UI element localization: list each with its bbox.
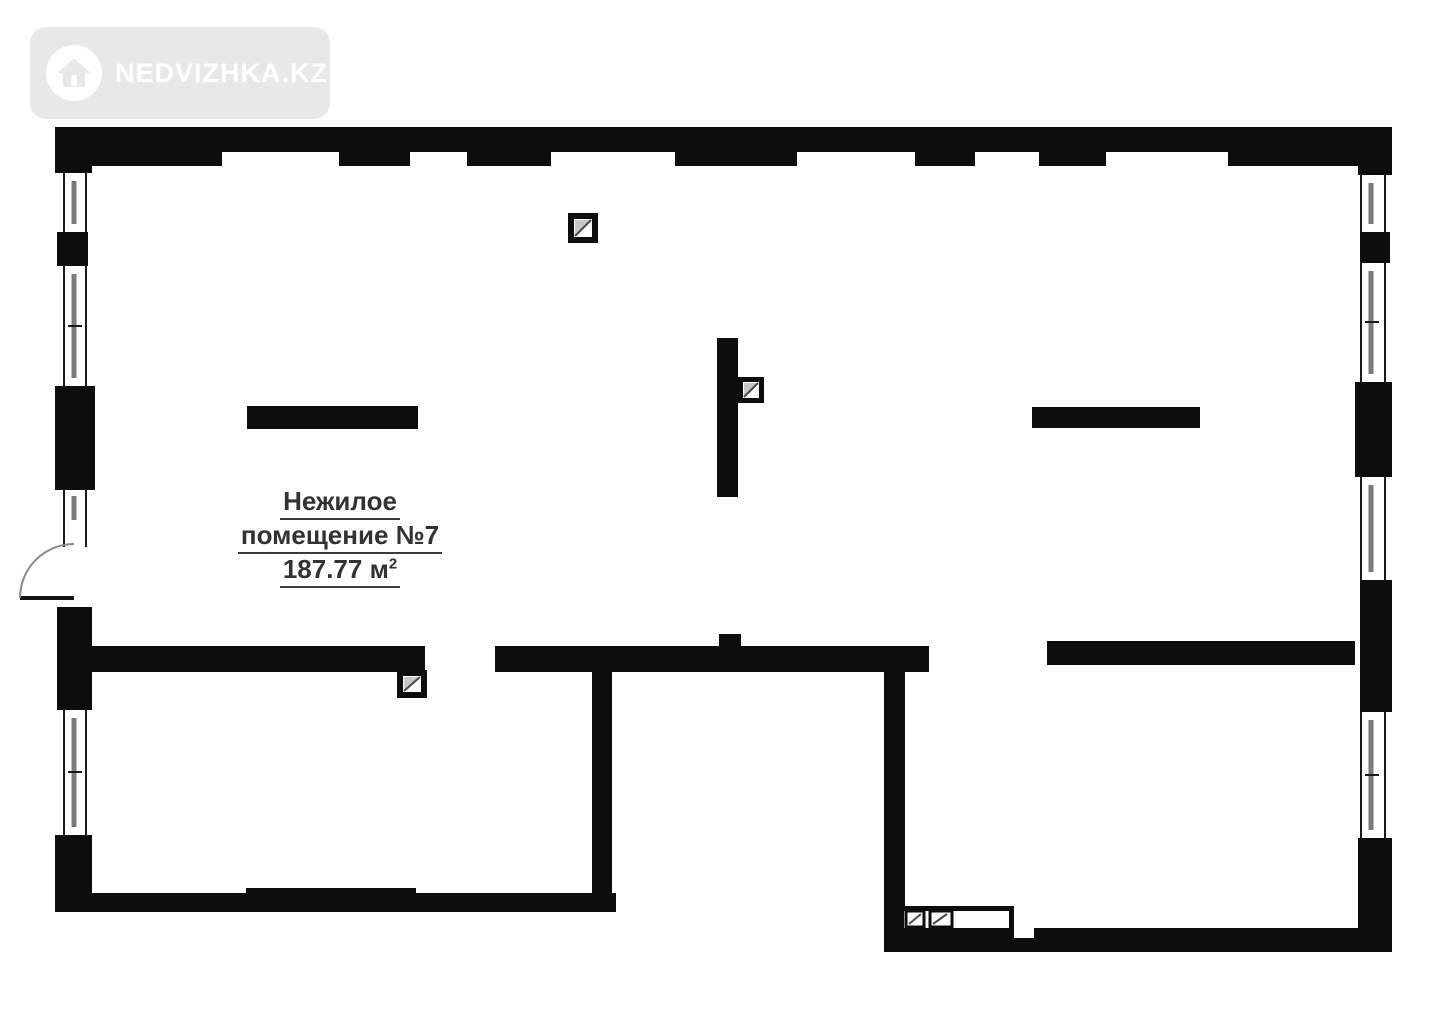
windows-left-wall (64, 173, 86, 835)
window (64, 266, 86, 386)
window (64, 490, 86, 525)
floorplan-page: Нежилое помещение №7 187.77 м2 NEDVIZHKA… (0, 0, 1440, 1017)
window (64, 710, 86, 835)
duct-symbol-small (930, 911, 952, 927)
window (1361, 175, 1385, 232)
duct-symbol-center (738, 377, 764, 403)
house-icon (46, 45, 102, 101)
window (1361, 712, 1385, 838)
window (1361, 477, 1385, 580)
shaft-box-bottom-right (899, 906, 1014, 932)
room-label: Нежилое помещение №7 187.77 м2 (200, 486, 480, 588)
area-exponent: 2 (389, 555, 397, 572)
brand-text: NEDVIZHKA.KZ (115, 58, 328, 89)
duct-symbol-top (568, 213, 598, 243)
door-swing-arc (20, 544, 74, 598)
interior-walls (92, 338, 1355, 928)
room-label-line1: Нежилое (280, 486, 400, 520)
room-label-line2: помещение №7 (238, 520, 442, 554)
watermark-badge: NEDVIZHKA.KZ (30, 27, 330, 119)
duct-symbol-small (906, 911, 924, 927)
area-label: 187.77 м2 (200, 554, 480, 588)
duct-symbol-wall-end (397, 670, 427, 698)
entrance-door (20, 525, 86, 598)
windows-right-wall (1361, 175, 1385, 838)
window (1361, 263, 1385, 382)
window (64, 173, 86, 232)
